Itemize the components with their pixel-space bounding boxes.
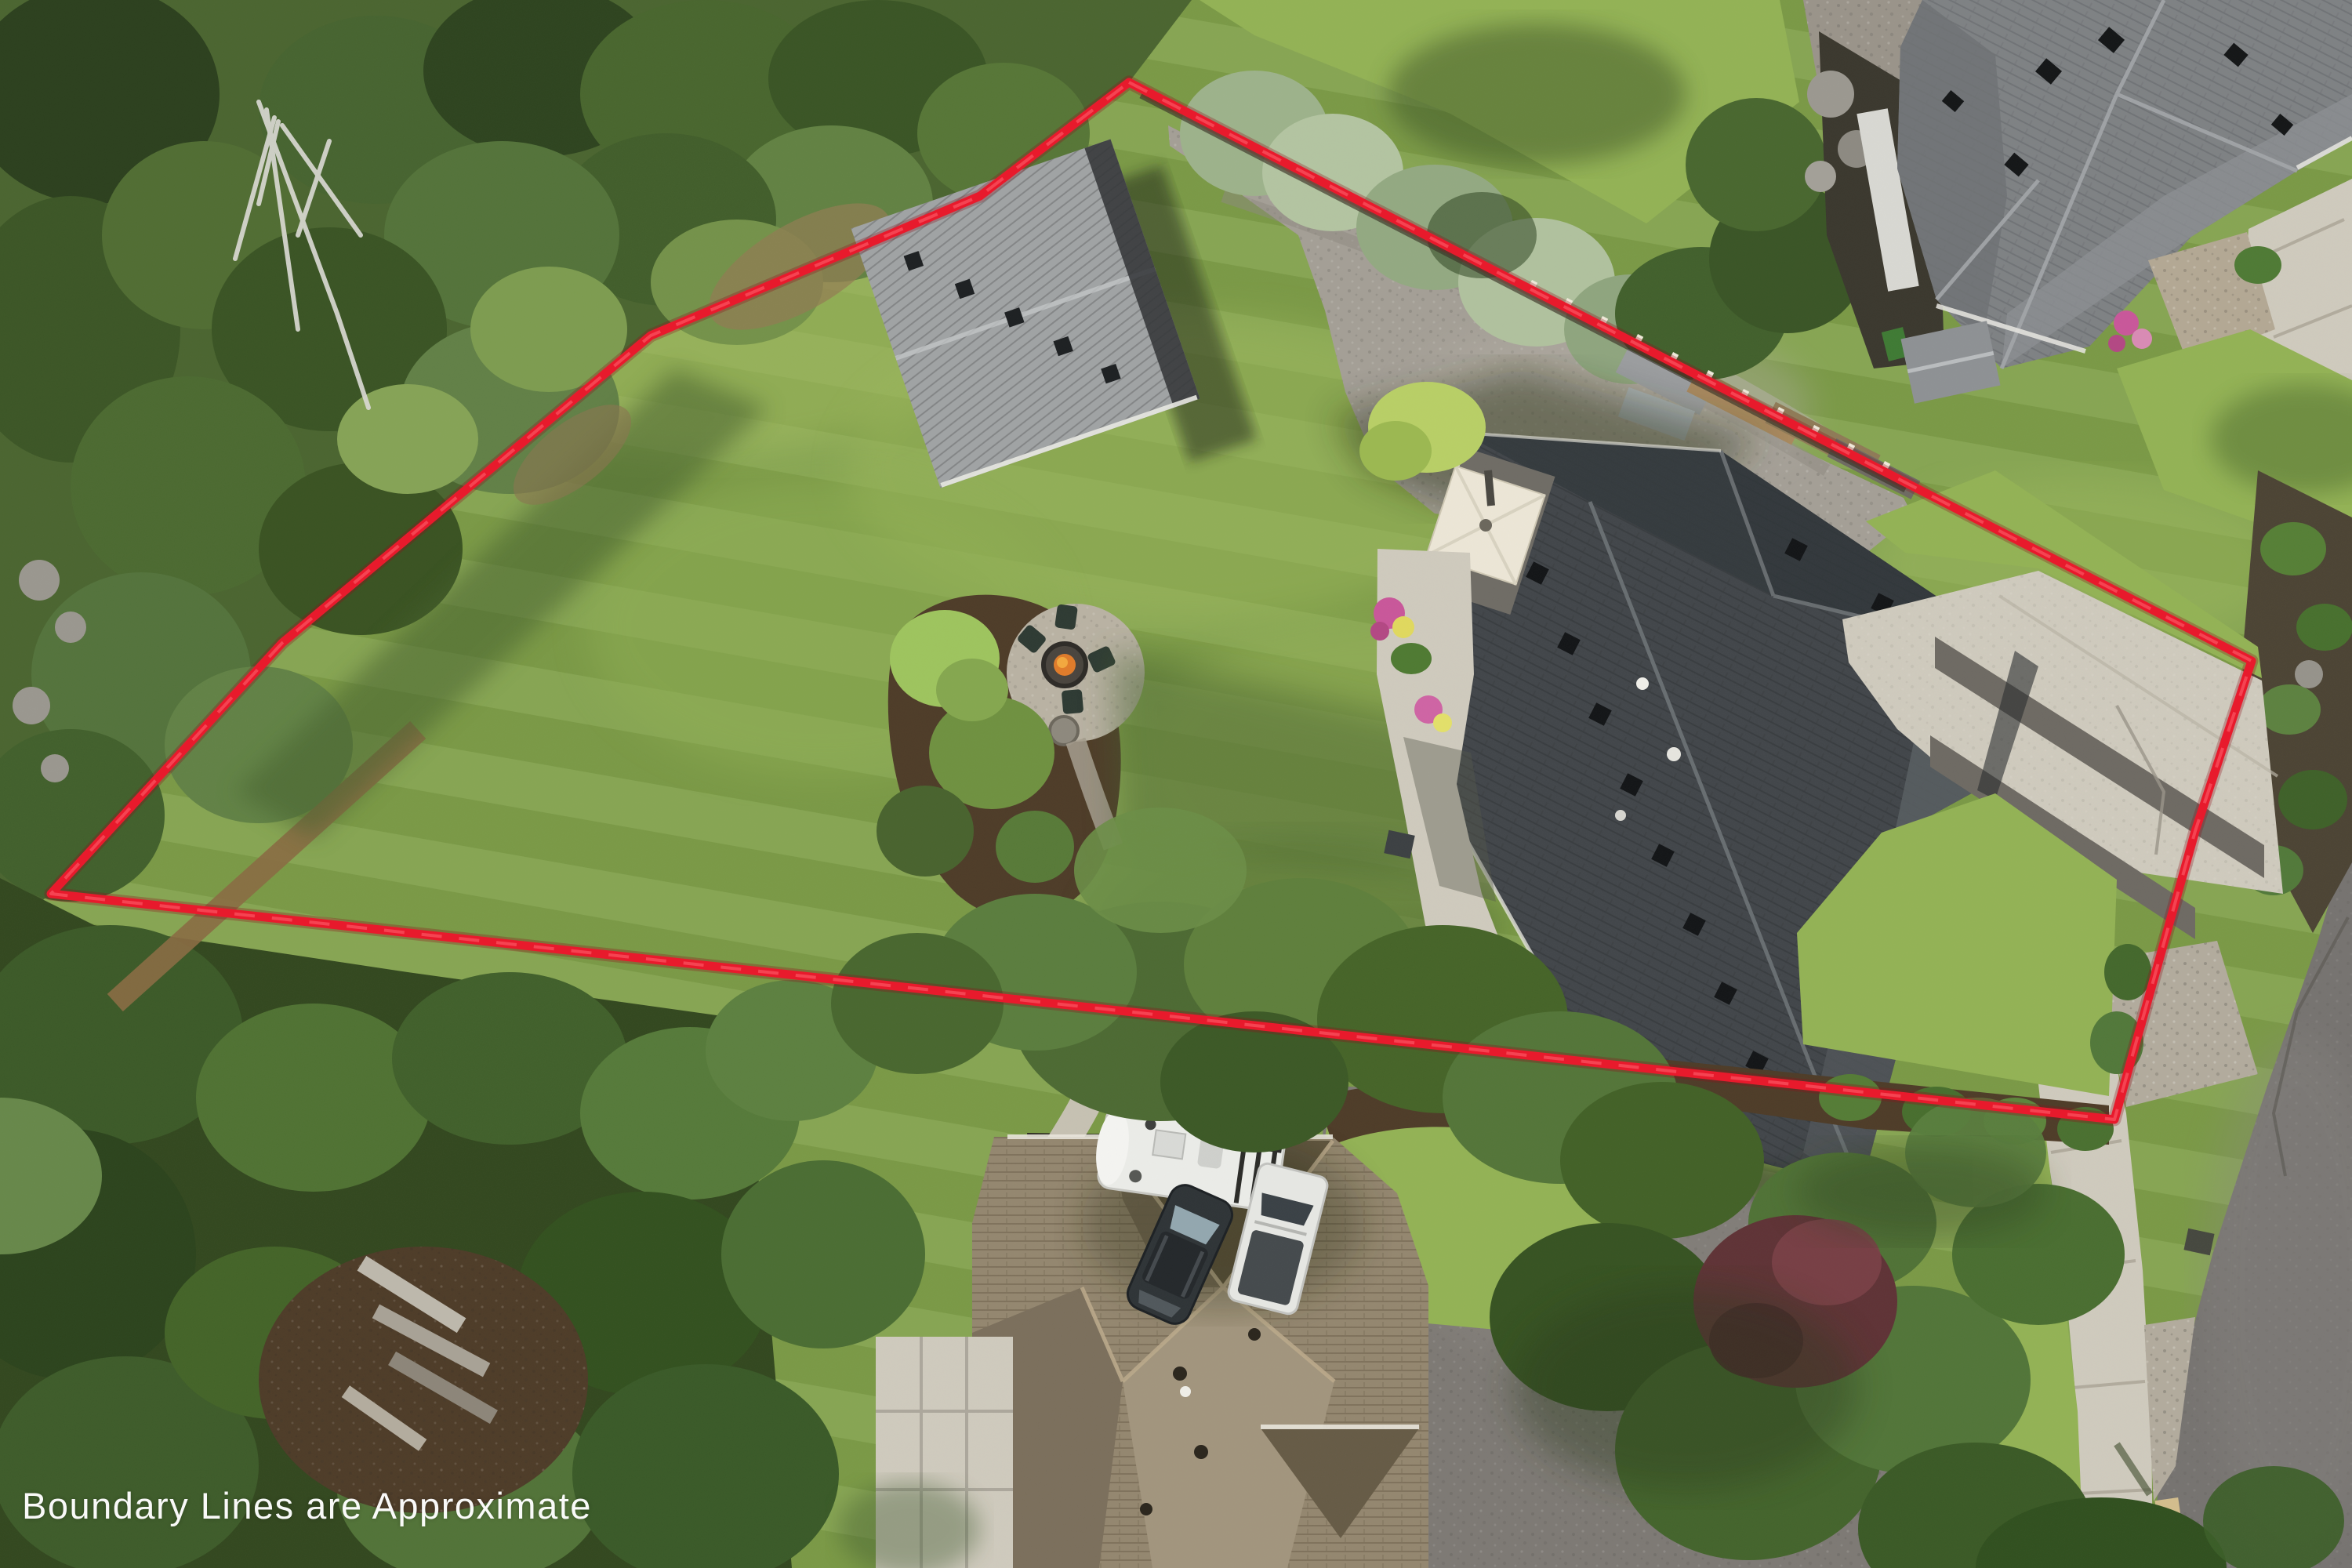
- aerial-photo: Boundary Lines are Approximate: [0, 0, 2352, 1568]
- photo-grain: [0, 0, 2352, 1568]
- caption-text: Boundary Lines are Approximate: [22, 1484, 592, 1527]
